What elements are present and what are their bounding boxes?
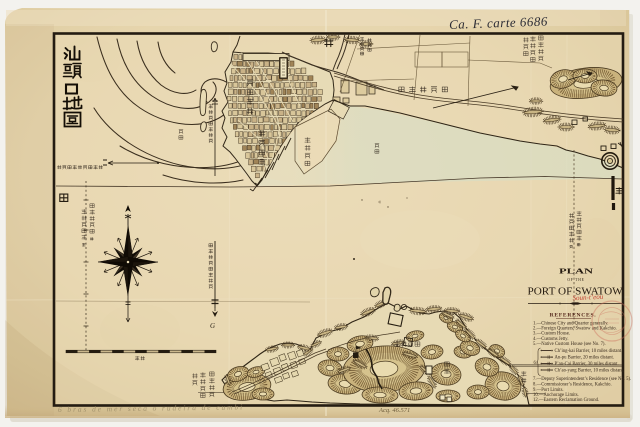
svg-text:OF THE: OF THE	[567, 278, 584, 282]
svg-text:8.—Commissioner’s Residence, K: 8.—Commissioner’s Residence, Kakchio.	[533, 383, 612, 388]
svg-text:6.: 6.	[534, 361, 538, 366]
svg-text:7.—Deputy Superintendent’s Res: 7.—Deputy Superintendent’s Residence (se…	[533, 377, 631, 382]
svg-text:4.—Customs Jetty.: 4.—Customs Jetty.	[533, 337, 569, 342]
svg-text:G: G	[210, 322, 215, 330]
svg-text:An-pu Barrier, 20 miles distan: An-pu Barrier, 20 miles distant.	[555, 356, 614, 361]
svg-text:Acq. 46.571: Acq. 46.571	[378, 407, 410, 414]
svg-text:12.—Eastern Reclamation Ground: 12.—Eastern Reclamation Ground.	[533, 398, 599, 403]
svg-text:REFERENCES.: REFERENCES.	[550, 313, 597, 319]
svg-text:Soun-t’eou: Soun-t’eou	[572, 293, 604, 303]
svg-text:Ch’ing-kai Barrier, 10 miles d: Ch’ing-kai Barrier, 10 miles distant.	[555, 349, 623, 354]
svg-text:Ch’ao-yang Barrier, 10 miles d: Ch’ao-yang Barrier, 10 miles distant.	[555, 369, 625, 374]
svg-text:PLAN: PLAN	[559, 268, 594, 276]
svg-text:P’an-Cai Barrier, 30 miles dis: P’an-Cai Barrier, 30 miles distant.	[555, 362, 619, 367]
svg-text:5.—Native Custom House (see No: 5.—Native Custom House (see No. 7).	[533, 342, 606, 347]
